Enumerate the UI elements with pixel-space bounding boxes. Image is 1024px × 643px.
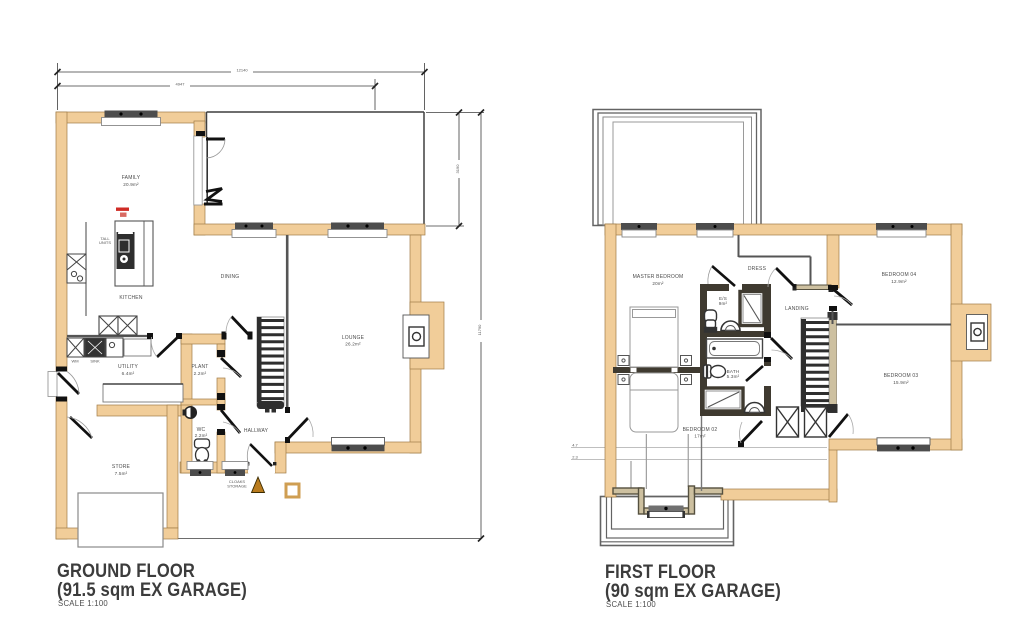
svg-text:BEDROOM 03: BEDROOM 03 [884, 373, 919, 379]
svg-text:SCALE 1:100: SCALE 1:100 [58, 599, 108, 608]
svg-text:(90 sqm EX GARAGE): (90 sqm EX GARAGE) [605, 580, 781, 602]
svg-text:DRESS: DRESS [748, 266, 767, 272]
svg-text:LOUNGE: LOUNGE [342, 335, 365, 341]
svg-text:SCALE 1:100: SCALE 1:100 [606, 600, 656, 609]
svg-text:STORE: STORE [112, 464, 131, 470]
svg-text:20m²: 20m² [652, 281, 664, 286]
svg-text:7.5m²: 7.5m² [115, 471, 128, 476]
svg-text:LANDING: LANDING [785, 306, 809, 312]
svg-text:HALLWAY: HALLWAY [244, 428, 269, 434]
svg-text:KITCHEN: KITCHEN [119, 295, 143, 301]
svg-text:MASTER BEDROOM: MASTER BEDROOM [633, 274, 684, 280]
svg-text:26.2m²: 26.2m² [345, 342, 361, 347]
svg-text:WM: WM [71, 359, 78, 364]
svg-text:BEDROOM 04: BEDROOM 04 [882, 272, 917, 278]
svg-text:5.3m²: 5.3m² [727, 374, 740, 379]
svg-text:3190: 3190 [455, 164, 460, 174]
svg-text:UNITS: UNITS [99, 240, 111, 245]
svg-text:12.9m²: 12.9m² [891, 279, 907, 284]
svg-text:15.9m²: 15.9m² [893, 380, 909, 385]
svg-text:6.4m²: 6.4m² [122, 371, 135, 376]
svg-text:2.3: 2.3 [572, 455, 578, 460]
svg-text:20.9m²: 20.9m² [123, 182, 139, 187]
svg-text:(91.5 sqm EX GARAGE): (91.5 sqm EX GARAGE) [57, 579, 247, 601]
svg-text:STORAGE: STORAGE [227, 484, 247, 489]
svg-text:2.2m²: 2.2m² [195, 433, 208, 438]
svg-text:2.2m²: 2.2m² [194, 371, 207, 376]
svg-text:4947: 4947 [176, 82, 186, 87]
svg-text:DINING: DINING [221, 274, 240, 280]
svg-text:9m²: 9m² [719, 301, 728, 306]
svg-text:BEDROOM 02: BEDROOM 02 [683, 427, 718, 433]
svg-text:12140: 12140 [236, 68, 248, 73]
svg-text:11790: 11790 [477, 324, 482, 336]
svg-text:17m²: 17m² [694, 434, 706, 439]
svg-text:4.7: 4.7 [572, 443, 578, 448]
svg-text:PLANT: PLANT [191, 364, 208, 370]
svg-text:UTILITY: UTILITY [118, 364, 138, 370]
svg-text:SINK: SINK [90, 359, 100, 364]
svg-text:FAMILY: FAMILY [122, 175, 141, 181]
